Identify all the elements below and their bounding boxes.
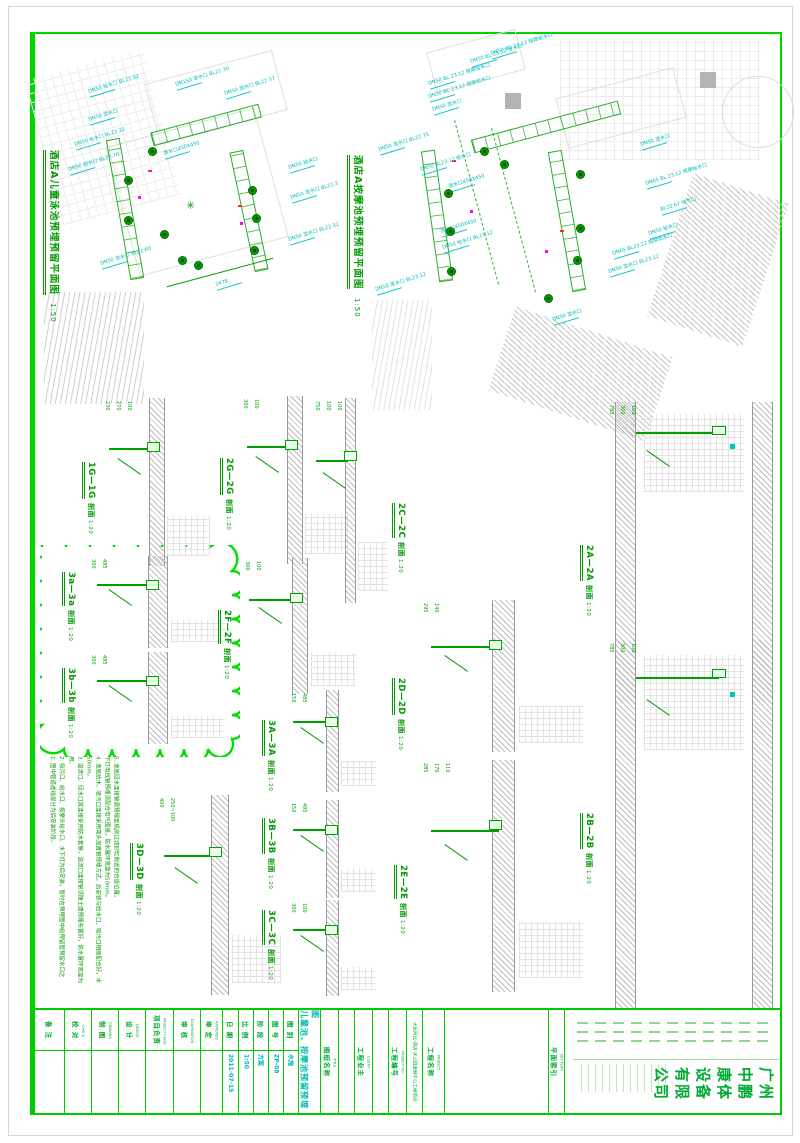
tile-grid	[644, 655, 745, 751]
field-value-box: 2011-07-15	[223, 1054, 238, 1113]
titleblock-cell-kv: 日 期2011-07-15	[223, 1010, 239, 1113]
pipe-fitting	[325, 825, 338, 835]
field-label-en: PROJECT CHIEF	[163, 1018, 167, 1045]
section-type: 剖面	[87, 503, 95, 518]
dimension-text: 485	[301, 693, 307, 703]
titleblock-cell-head: 工程名称PROJECT	[423, 1010, 445, 1113]
dimension-text: 170	[433, 763, 439, 773]
dimension-text: 100	[325, 401, 331, 411]
pool-fitting-symbol	[576, 224, 585, 233]
dimension-text: 100	[255, 561, 261, 571]
section-title-2F: 2F—2F剖面1:20	[222, 610, 232, 680]
section-title-3b: 3b—3b剖面1:20	[66, 668, 76, 738]
pipe-fitting	[489, 820, 502, 830]
pool-fitting-symbol	[446, 227, 455, 236]
pool-wall-hatch	[492, 600, 516, 752]
dimension-text: 300	[619, 643, 625, 653]
section-scale: 1:20	[135, 901, 141, 915]
field-label-box: 项目负责PROJECT CHIEF	[146, 1010, 173, 1051]
section-drawing: 300495	[86, 556, 228, 648]
field-label: 图 号	[271, 1021, 281, 1039]
section-scale: 1:20	[87, 520, 93, 534]
pool-fitting-symbol	[252, 214, 261, 223]
dimension-text: 300	[619, 405, 625, 415]
field-label-en: KEY PLAN	[560, 1054, 564, 1071]
dimension-text: 150	[290, 803, 296, 813]
titleblock-cell-empty	[339, 1010, 355, 1113]
leader-line	[108, 589, 132, 606]
pool-wall-hatch	[615, 640, 637, 1008]
field-label-en: APPROVED	[215, 1021, 219, 1040]
pool-wall-hatch	[292, 558, 309, 694]
dimension-text: 785	[608, 643, 614, 653]
tile-grid	[644, 414, 745, 492]
tile-grid	[341, 761, 376, 785]
pool-fitting-symbol	[576, 170, 585, 179]
titleblock-cell-head: 工程业主CLIENT	[355, 1010, 373, 1113]
section-type: 剖面	[399, 903, 407, 918]
pool-fitting-symbol	[444, 189, 453, 198]
plan2-scale: 1:50	[353, 298, 361, 318]
section-scale: 1:20	[267, 875, 273, 889]
titleblock-cell-empty	[373, 1010, 389, 1113]
dimension-text: 100	[630, 643, 636, 653]
pool-fitting-symbol	[250, 246, 259, 255]
field-label-box: 工程编号PROJECT NO.	[389, 1010, 406, 1113]
field-label: 审 定	[205, 1021, 215, 1039]
pipe-fitting	[209, 847, 222, 857]
section-name: 3C—3C	[262, 910, 276, 945]
tile-grid	[358, 542, 388, 591]
field-value: 水施	[287, 1054, 296, 1066]
water-level-marker	[730, 444, 735, 449]
field-label: 图 别	[286, 1021, 296, 1039]
water-level-marker	[730, 692, 735, 697]
leader-line	[258, 607, 282, 624]
titleblock-cell-kv: 图 别水施	[284, 1010, 299, 1113]
dimension-text: 400	[158, 798, 164, 808]
section-title-2E: 2E—2E剖面1:20	[398, 865, 408, 935]
tile-grid	[171, 716, 225, 738]
field-label-box: 工程名称PROJECT	[423, 1010, 444, 1113]
contact-line	[577, 1031, 775, 1033]
pipe-fitting	[325, 925, 338, 935]
company-name: 广州中鹏康体设备有限公司	[651, 1067, 777, 1107]
section-name: 2G—2G	[220, 458, 234, 495]
section-drawing: 230270100	[100, 398, 212, 566]
pipe-fitting	[712, 669, 726, 678]
pipe-fitting	[146, 676, 159, 686]
field-label-box: 阶 段	[254, 1010, 268, 1051]
contact-line	[577, 1040, 775, 1042]
pool-wall-hatch	[148, 556, 168, 648]
project-name: 大玩阿比·酒店·水公园度假中心工程项目	[412, 1022, 418, 1101]
dimension-text: 250~100	[169, 798, 175, 821]
project-name-box: 大玩阿比·酒店·水公园度假中心工程项目	[407, 1010, 422, 1113]
pipe-fitting	[489, 640, 502, 650]
deck-hatch	[372, 300, 432, 410]
pipe-fitting	[146, 580, 159, 590]
section-title-2C: 2C—2C剖面1:20	[396, 503, 406, 574]
section-scale: 1:20	[267, 777, 273, 791]
section-type: 剖面	[67, 610, 75, 625]
pool-fitting-symbol	[573, 256, 582, 265]
titleblock-cell-smalltitle: 大玩阿比·酒店·水公园度假中心工程项目	[407, 1010, 423, 1113]
titleblock-cell-empty	[445, 1010, 549, 1113]
pipe-fitting	[712, 426, 726, 435]
section-scale: 1:20	[397, 736, 403, 750]
field-label: 工程编号	[391, 1047, 401, 1077]
pool-fitting-symbol	[544, 294, 553, 303]
titleblock-cell-bigtitle: 儿童池、按摩池预留预埋图	[299, 1010, 321, 1113]
tile-grid	[167, 516, 210, 556]
field-label: 工程名称	[427, 1047, 437, 1077]
dimension-text: 100	[301, 903, 307, 913]
section-title-1G: 1G—1G剖面1:20	[86, 462, 96, 534]
pool-fitting-symbol	[178, 256, 187, 265]
titleblock-cell-head: 工程编号PROJECT NO.	[389, 1010, 407, 1113]
titleblock-cell-company: 广州中鹏康体设备有限公司	[565, 1010, 787, 1113]
leader-line	[322, 472, 346, 489]
pool-fitting-symbol	[148, 147, 157, 156]
section-scale: 1:20	[267, 966, 273, 980]
pipe-fitting	[147, 442, 160, 452]
field-value: ZP-08	[273, 1054, 280, 1073]
titleblock-cell-head: 平面索引KEY PLAN	[549, 1010, 565, 1113]
section-scale: 1:20	[397, 559, 403, 573]
section-name: 2A—2A	[580, 545, 594, 581]
dimension-text: 785	[608, 405, 614, 415]
field-label-box: 制 图DRAWING	[92, 1010, 118, 1051]
field-label: 制 图	[98, 1021, 108, 1039]
field-label-box: 比 例	[239, 1010, 253, 1051]
section-title-2G: 2G—2G剖面1:20	[224, 458, 234, 530]
field-label-box: 设 计DESIGN	[119, 1010, 145, 1051]
section-drawing: 150485	[286, 690, 378, 792]
dimension-text: 100	[253, 399, 259, 409]
field-label: 设 计	[125, 1021, 135, 1039]
field-label-box: 日 期	[223, 1010, 238, 1051]
pool-wall-hatch	[326, 690, 339, 792]
field-label-box: 图 别	[284, 1010, 298, 1051]
field-label-en: DRAWING	[108, 1022, 112, 1039]
section-drawing: 300100	[240, 558, 358, 694]
field-label-en: PROJECT	[437, 1055, 441, 1070]
titleblock-cell-sig: 备 注	[35, 1010, 65, 1113]
sheet-title-box: 儿童池、按摩池预留预埋图	[299, 1010, 320, 1113]
section-name: 3a—3a	[62, 572, 76, 606]
field-label-en: CLIENT	[367, 1056, 371, 1068]
field-label-box: 工程业主CLIENT	[355, 1010, 372, 1113]
field-label: 审 核	[180, 1021, 190, 1039]
tile-grid	[341, 869, 376, 893]
field-label: 比 例	[241, 1021, 251, 1039]
tile-grid	[519, 706, 583, 742]
field-label: 日 期	[226, 1021, 236, 1039]
field-label: 阶 段	[256, 1021, 266, 1039]
titleblock-cell-kv: 图 号ZP-08	[269, 1010, 284, 1113]
titleblock-cell-sig: 审 定APPROVED	[201, 1010, 223, 1113]
field-value-box: ZP-08	[269, 1054, 283, 1113]
section-drawing: 300495	[86, 652, 228, 744]
section-title-3B: 3B—3B剖面1:20	[266, 818, 276, 889]
pool-wall-hatch	[326, 900, 339, 996]
section-title-2D: 2D—2D剖面1:20	[396, 678, 406, 750]
field-label: 图纸名称	[323, 1047, 333, 1077]
dimension-text: 140	[433, 603, 439, 613]
dimension-text: 300	[290, 903, 296, 913]
field-value: 方案	[257, 1054, 266, 1066]
dimension-text: 300	[90, 655, 96, 665]
leader-line	[444, 844, 468, 861]
titleblock-cell-sig: 校 对CHECK	[65, 1010, 92, 1113]
company-contact-lines	[573, 1015, 779, 1060]
leader-line	[444, 655, 468, 672]
field-value-box: 方案	[254, 1054, 268, 1113]
leader-line	[300, 935, 324, 952]
dimension-text: 230	[104, 401, 110, 411]
field-label-en: EXAMINATION	[190, 1019, 194, 1043]
dimension-text: 750	[314, 401, 320, 411]
pool-fitting-symbol	[480, 147, 489, 156]
titleblock-cell-sig: 设 计DESIGN	[119, 1010, 146, 1113]
column-marker	[505, 93, 521, 109]
dimension-text: 300	[242, 399, 248, 409]
dimension-text: 100	[126, 401, 132, 411]
pool-fitting-symbol	[194, 261, 203, 270]
dimension-text: 110	[444, 763, 450, 773]
plan1-scale: 1:50	[49, 303, 57, 323]
section-name: 1G—1G	[82, 462, 96, 499]
section-type: 剖面	[267, 760, 275, 775]
dimension-text: 495	[301, 803, 307, 813]
field-label-box: 审 核EXAMINATION	[174, 1010, 200, 1051]
pool-wall-hatch	[492, 760, 516, 992]
pool-wall-hatch	[148, 652, 168, 744]
pipe-fitting	[290, 593, 303, 603]
section-scale: 1:20	[67, 627, 73, 641]
field-label-box: 图纸名称TITLE	[321, 1010, 338, 1113]
dimension-text: 300	[90, 559, 96, 569]
section-type: 剖面	[397, 719, 405, 734]
section-name: 3b—3b	[62, 668, 76, 703]
pool-fitting-symbol	[124, 176, 133, 185]
section-name: 2D—2D	[392, 678, 406, 715]
field-label-en: TITLE	[333, 1058, 337, 1067]
pool-fitting-symbol	[248, 186, 257, 195]
field-label: 校 对	[71, 1021, 81, 1039]
dimension-text: 100	[336, 401, 342, 411]
field-value: 1:50	[243, 1054, 250, 1069]
section-type: 剖面	[223, 648, 231, 663]
plan1-title-text: 酒店A儿童泳池预埋预留平面图	[43, 150, 59, 295]
field-label-en: CHECK	[81, 1025, 85, 1037]
pipe-fitting	[285, 440, 298, 450]
leader-line	[117, 458, 141, 475]
field-label-box: 图 号	[269, 1010, 283, 1051]
column-marker	[700, 72, 716, 88]
section-title-3D: 3D—3D剖面1:20	[134, 843, 144, 915]
tile-grid	[341, 967, 376, 990]
landscape-circle	[722, 76, 794, 148]
section-type: 剖面	[397, 542, 405, 557]
dimension-text: 495	[101, 655, 107, 665]
pool-fitting-symbol	[500, 160, 509, 169]
leader-line	[255, 456, 279, 473]
section-name: 2F—2F	[218, 610, 232, 644]
section-type: 剖面	[135, 884, 143, 899]
notes-text: 1. 图中管道虚线部分为后安装阶段。 2. 吸污口、给水口、按摩头给水口、水下灯…	[49, 756, 118, 983]
pool-fitting-symbol	[447, 267, 456, 276]
titleblock-cell-sig: 制 图DRAWING	[92, 1010, 119, 1113]
section-type: 剖面	[267, 858, 275, 873]
plan1-title: 酒店A儿童泳池预埋预留平面图 1:50	[48, 150, 62, 323]
dimension-text: 270	[115, 401, 121, 411]
titleblock-cell-kv: 比 例1:50	[239, 1010, 254, 1113]
pool-wall-hatch	[211, 795, 229, 995]
field-label: 工程业主	[357, 1047, 367, 1077]
field-value: 2011-07-15	[227, 1054, 234, 1092]
pipe-fitting	[344, 451, 357, 461]
section-name: 3D—3D	[130, 843, 144, 880]
section-name: 3A—3A	[262, 720, 276, 756]
section-scale: 1:20	[223, 665, 229, 679]
section-type: 剖面	[585, 585, 593, 600]
dimension-text: 495	[101, 559, 107, 569]
pipe-fitting	[325, 717, 338, 727]
plan2-title-text: 酒店A按摩池预埋预留平面图	[347, 155, 363, 289]
pool-fitting-symbol	[160, 230, 169, 239]
titleblock-cell-kv: 阶 段方案	[254, 1010, 269, 1113]
pool-wall-hatch	[287, 396, 303, 564]
field-value-box: 1:50	[239, 1054, 253, 1113]
section-type: 剖面	[585, 853, 593, 868]
tile-grid	[311, 653, 356, 686]
field-label: 平面索引	[550, 1047, 560, 1077]
section-scale: 1:20	[399, 920, 405, 934]
dimension-text: 285	[422, 763, 428, 773]
section-name: 2E—2E	[394, 865, 408, 899]
field-label: 项目负责	[153, 1015, 163, 1045]
general-notes: 1. 图中管道虚线部分为后安装阶段。 2. 吸污口、给水口、按摩头给水口、水下灯…	[38, 756, 122, 984]
titleblock-cell-head: 图纸名称TITLE	[321, 1010, 339, 1113]
sheet-title: 儿童池、按摩池预留预埋图	[299, 1010, 321, 1113]
leader-line	[300, 835, 324, 852]
section-title-3a: 3a—3a剖面1:20	[66, 572, 76, 642]
field-label: 备 注	[45, 1021, 55, 1039]
section-type: 剖面	[267, 949, 275, 964]
field-label-en: PROJECT NO.	[401, 1051, 405, 1074]
pool-fitting-symbol	[124, 216, 133, 225]
dimension-text: 100	[630, 405, 636, 415]
section-type: 剖面	[225, 499, 233, 514]
field-label-box: 校 对CHECK	[65, 1010, 91, 1051]
dimension-text: 150	[290, 693, 296, 703]
section-drawing: 785300100	[604, 640, 784, 1008]
title-block: 备 注校 对CHECK制 图DRAWING设 计DESIGN项目负责PROJEC…	[30, 1008, 782, 1115]
field-label-box: 平面索引KEY PLAN	[549, 1010, 564, 1113]
dimension-text: 300	[244, 561, 250, 571]
section-name: 2C—2C	[392, 503, 406, 538]
pool-wall-hatch	[752, 640, 774, 1008]
section-name: 2B—2B	[580, 813, 594, 849]
section-title-3A: 3A—3A剖面1:20	[266, 720, 276, 791]
leader-line	[174, 867, 198, 884]
plan2-title: 酒店A按摩池预埋预留平面图 1:50	[352, 155, 366, 317]
field-label-box: 审 定APPROVED	[201, 1010, 222, 1051]
leader-line	[300, 727, 324, 744]
tile-grid	[519, 922, 583, 978]
pool-wall-hatch	[326, 800, 339, 898]
section-drawing: 295140	[418, 600, 586, 752]
section-title-2B: 2B—2B剖面1:20	[584, 813, 594, 884]
drawing-sheet: ✳ 酒店A儿童泳池预埋预留平面图 1:50 DN50 给水口 BL22.32DN…	[0, 0, 800, 1143]
field-label-box: 备 注	[35, 1010, 64, 1051]
main-drain-symbol: ✳	[186, 200, 195, 211]
section-title-3C: 3C—3C剖面1:20	[266, 910, 276, 981]
section-drawing: 300100	[286, 900, 378, 996]
titleblock-cell-sig: 审 核EXAMINATION	[174, 1010, 201, 1113]
section-drawing: 285170110	[418, 760, 586, 992]
section-drawing: 150495	[286, 800, 378, 898]
pool-wall-hatch	[149, 398, 165, 566]
embedded-pipe	[636, 677, 719, 679]
section-type: 剖面	[67, 707, 75, 722]
field-value-box: 水施	[284, 1054, 298, 1113]
titleblock-cell-sig: 项目负责PROJECT CHIEF	[146, 1010, 174, 1113]
contact-line	[577, 1022, 775, 1024]
embedded-pipe	[636, 432, 719, 434]
leader-line	[108, 685, 132, 702]
section-scale: 1:20	[225, 516, 231, 530]
section-scale: 1:20	[67, 724, 73, 738]
section-name: 3B—3B	[262, 818, 276, 854]
field-label-en: DESIGN	[135, 1024, 139, 1038]
section-scale: 1:20	[585, 870, 591, 884]
dimension-text: 295	[422, 603, 428, 613]
